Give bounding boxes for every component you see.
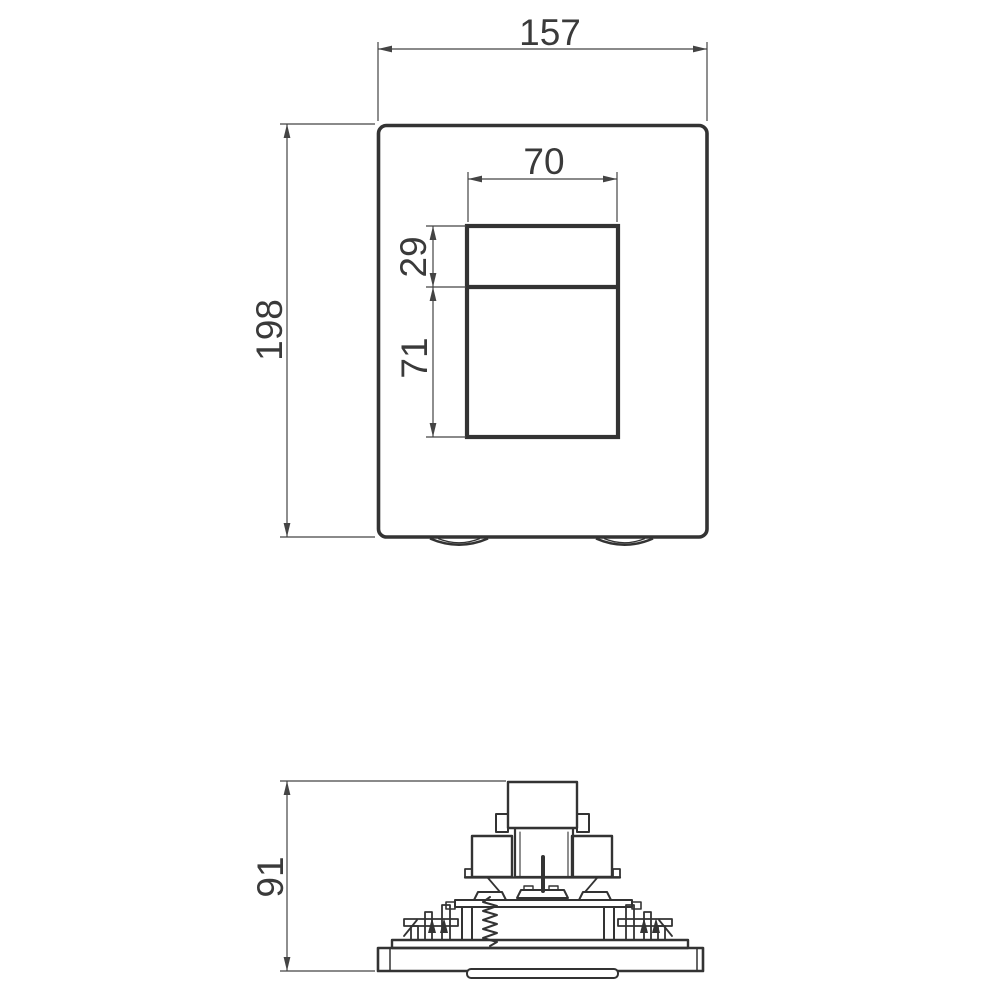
platform-notch	[549, 886, 558, 890]
side-view-geometry	[378, 782, 703, 978]
arrow-right	[693, 46, 707, 53]
side-view: 91	[250, 781, 703, 978]
dim-opening-lower-height-label: 71	[394, 337, 435, 378]
spring-coil	[483, 897, 497, 946]
arrow-bottom	[284, 523, 291, 537]
right-support-column	[604, 907, 614, 940]
dim-overall-width-label: 157	[519, 12, 581, 53]
left-rod-tab	[496, 814, 508, 832]
dim-overall-height: 198	[249, 124, 375, 537]
front-view-geometry	[379, 126, 708, 545]
front-view: 157 198 70	[249, 12, 707, 545]
dim-overall-width: 157	[378, 12, 707, 121]
platform-notch	[524, 886, 533, 890]
dim-side-height: 91	[250, 781, 506, 971]
base-plate	[378, 948, 703, 971]
right-mounting-tab-outer-arc	[596, 539, 653, 545]
arrow-left	[378, 46, 392, 53]
clip-post	[626, 905, 634, 940]
dim-overall-height-label: 198	[249, 299, 290, 361]
left-support-column	[462, 907, 472, 940]
technical-drawing-canvas: 157 198 70	[0, 0, 1000, 1000]
left-mounting-clip	[404, 905, 458, 940]
dim-side-height-label: 91	[250, 856, 291, 897]
arrow-top	[284, 124, 291, 138]
right-shoulder-block	[572, 836, 612, 877]
carrier-band	[455, 900, 632, 907]
plate-outline	[379, 126, 708, 538]
right-mounting-clip	[618, 905, 672, 940]
arrow-top	[284, 781, 291, 795]
side-view-dimensions: 91	[250, 781, 506, 971]
left-shoulder-block	[472, 836, 512, 877]
right-brace	[585, 878, 597, 892]
arrow-bottom	[284, 957, 291, 971]
left-brace	[488, 878, 500, 892]
dim-opening-upper-height-label: 29	[393, 236, 434, 277]
drawing-svg: 157 198 70	[0, 0, 1000, 1000]
base-recess-strip	[467, 969, 618, 978]
dim-opening-width-label: 70	[523, 141, 564, 182]
top-block	[508, 782, 577, 828]
right-rod-tab	[577, 814, 589, 832]
clip-post	[411, 926, 418, 940]
right-foot	[579, 892, 611, 900]
right-mini-tab	[613, 869, 620, 877]
